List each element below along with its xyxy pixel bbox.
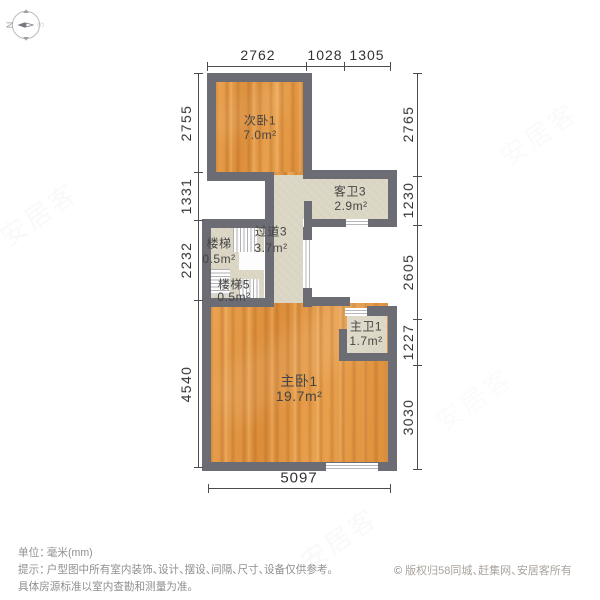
- svg-text:S: S: [36, 22, 46, 28]
- svg-text:N: N: [5, 22, 15, 29]
